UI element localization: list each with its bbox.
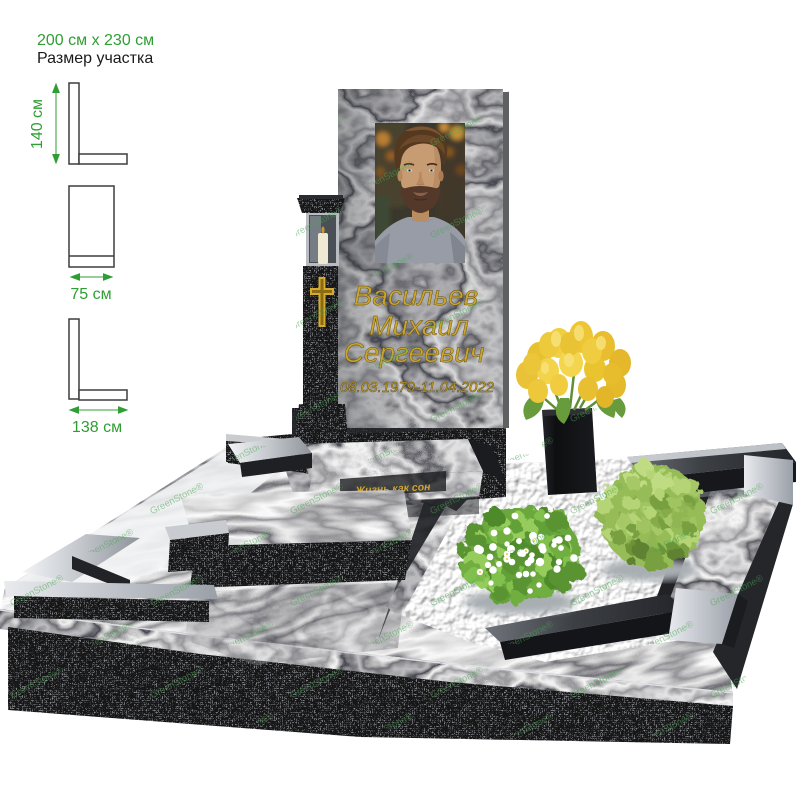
svg-text:200 см x 230 см: 200 см x 230 см [37,32,154,49]
svg-text:140 см: 140 см [29,99,46,149]
svg-text:138 см: 138 см [72,419,122,436]
svg-text:Размер участка: Размер участка [37,50,153,67]
svg-text:75 см: 75 см [70,286,111,303]
